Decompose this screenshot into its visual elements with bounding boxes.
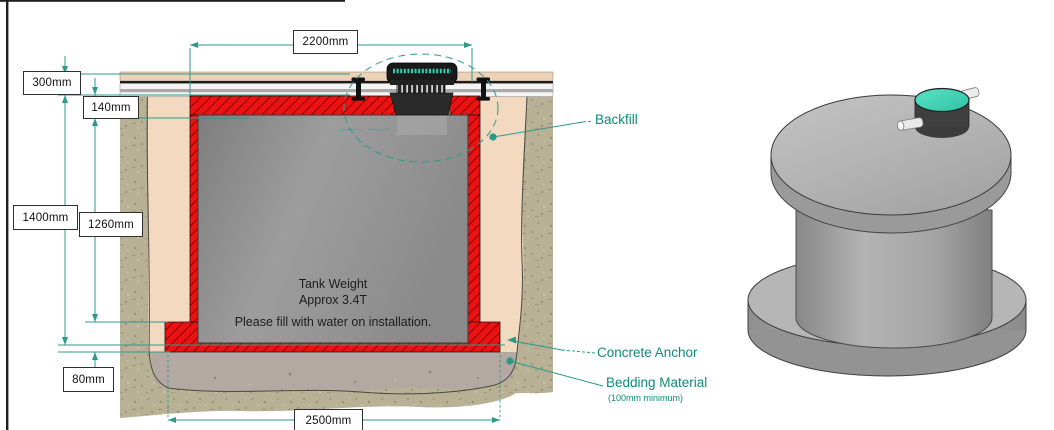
dim-box-140mm: 140mm [83, 96, 139, 119]
concrete-wall-left [190, 115, 198, 322]
cover-lip [390, 80, 454, 85]
callout-backfill: Backfill [595, 112, 638, 127]
installation-diagram-svg [0, 0, 1054, 430]
turret-teal-lid [915, 89, 969, 112]
callout-bedding-note: (100mm minimum) [608, 393, 683, 403]
tank-fill-note: Please fill with water on installation. [198, 315, 468, 331]
riser-shadow [397, 115, 447, 135]
tank-3d-render [748, 87, 1026, 376]
pipe-centerline [120, 89, 553, 92]
dim-box-1400mm: 1400mm [13, 205, 78, 230]
dim-box-1260mm: 1260mm [79, 212, 143, 237]
page-top-border [0, 0, 345, 2]
cross-section [120, 54, 553, 418]
concrete-top-slab-right [450, 96, 480, 115]
callout-bedding-material: Bedding Material [606, 375, 707, 390]
concrete-wall-right [468, 115, 480, 322]
tank-weight-line1: Tank Weight [198, 277, 468, 293]
tank-installation-drawing: 2200mm 300mm 140mm 1400mm 1260mm 80mm 25… [0, 0, 1054, 430]
tank-annotation-text: Tank Weight Approx 3.4T Please fill with… [198, 277, 468, 331]
dim-box-80mm: 80mm [63, 367, 114, 392]
dim-box-2500mm: 2500mm [294, 409, 363, 430]
lid-top [771, 95, 1011, 215]
callout-concrete-anchor: Concrete Anchor [597, 345, 698, 360]
bedding-region [152, 352, 517, 392]
backfill-leader-dot [489, 133, 496, 140]
bedding-leader-dot [506, 357, 513, 364]
page-left-border [6, 0, 8, 430]
tank-weight-line2: Approx 3.4T [198, 293, 468, 309]
manhole-collar [390, 93, 453, 115]
dim-box-300mm: 300mm [23, 71, 81, 95]
concrete-top-slab-left [190, 96, 396, 115]
dim-box-2200mm: 2200mm [293, 30, 358, 54]
